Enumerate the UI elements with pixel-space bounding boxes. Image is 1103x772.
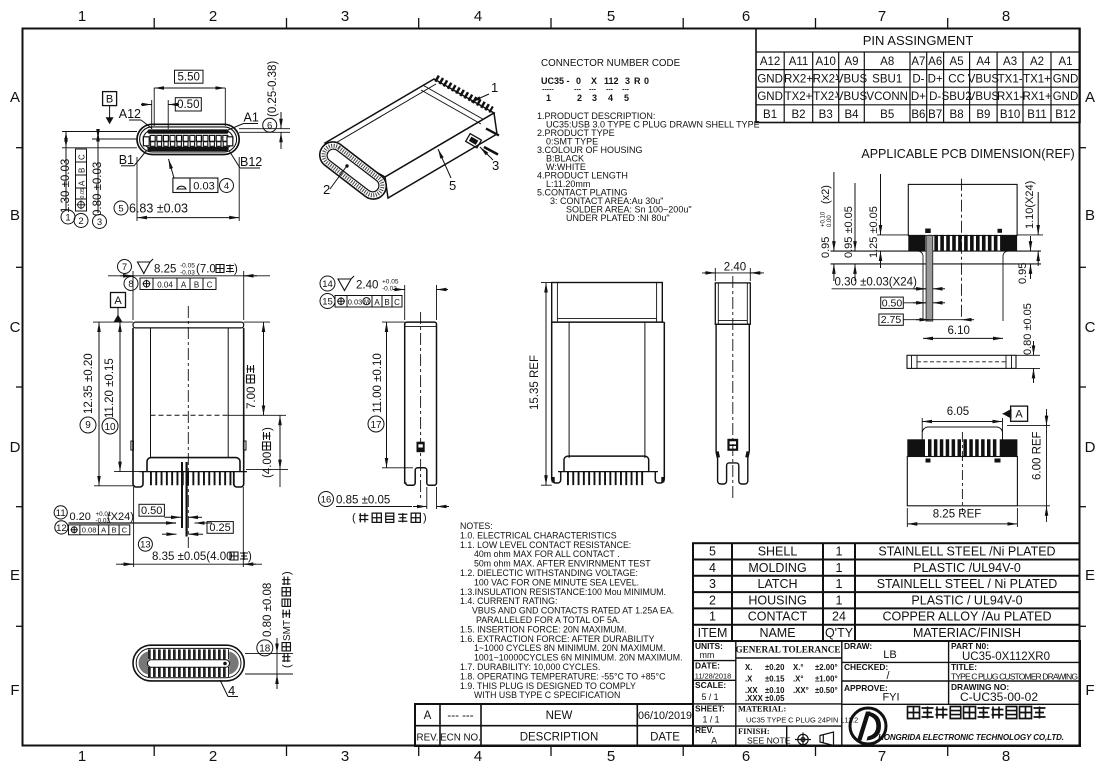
svg-text:STAINLELL STEEL /Ni PLATED: STAINLELL STEEL /Ni PLATED [878,545,1055,559]
svg-text:A: A [10,89,20,106]
svg-text:B1: B1 [763,109,777,121]
svg-text:A: A [78,180,87,186]
svg-text:8: 8 [1002,8,1010,25]
svg-text:.X: .X [745,675,753,684]
svg-text:2: 2 [209,748,217,765]
svg-text:1.25 ±0.05: 1.25 ±0.05 [868,206,880,258]
svg-text:D: D [10,439,21,456]
svg-text:0.80 ±0.05: 0.80 ±0.05 [1022,303,1034,355]
svg-text:A8: A8 [880,56,894,68]
svg-text:6.05: 6.05 [947,406,969,418]
svg-text:A: A [114,295,122,307]
svg-text:A7: A7 [911,56,925,68]
svg-text:B: B [384,298,389,307]
svg-text:TX2-: TX2- [813,91,838,103]
svg-text:3: 3 [492,158,499,173]
svg-text:X.: X. [745,663,752,672]
svg-text:B: B [106,93,113,105]
svg-text:(X24): (X24) [107,511,134,523]
svg-text:B2: B2 [791,109,805,121]
svg-text:UNDER PLATED :NI 80u": UNDER PLATED :NI 80u" [566,213,670,223]
svg-text:F: F [10,682,19,699]
svg-text:2.40: 2.40 [724,262,746,274]
svg-text:M: M [364,300,369,306]
svg-text:(4.00: (4.00 [262,452,274,478]
svg-text:UC35 TYPE C PLUG 24PIN L11.2: UC35 TYPE C PLUG 24PIN L11.2 [746,716,858,725]
svg-text:PLASTIC /UL94V-0: PLASTIC /UL94V-0 [913,561,1021,575]
svg-text:12: 12 [56,523,67,534]
svg-text:A: A [424,710,432,722]
svg-text:TX2+: TX2+ [785,91,813,103]
svg-text:2: 2 [209,8,217,25]
svg-text:1: 1 [836,561,843,575]
svg-text:5: 5 [624,93,629,103]
svg-text:1: 1 [78,748,86,765]
svg-text:A12: A12 [119,107,141,121]
svg-text:MATERIAC/FINISH: MATERIAC/FINISH [913,626,1021,640]
svg-text:5: 5 [709,545,716,559]
svg-text:2.75: 2.75 [881,314,902,326]
svg-text:C: C [122,526,128,535]
svg-text:A11: A11 [789,56,809,68]
svg-text:10: 10 [104,422,116,433]
svg-text:1: 1 [836,593,843,607]
svg-text:5.50: 5.50 [178,72,200,84]
svg-text:(0.25-0.38): (0.25-0.38) [267,61,279,117]
svg-text:B5: B5 [880,109,894,121]
svg-text:A6: A6 [928,56,942,68]
svg-text:B: B [111,526,116,535]
svg-text:3: 3 [625,76,630,86]
svg-text:0.08: 0.08 [82,526,97,535]
svg-text:SHELL: SHELL [758,545,798,559]
svg-text:MOLDING: MOLDING [748,561,806,575]
svg-text:17: 17 [370,420,382,431]
svg-text:REV.: REV. [417,733,439,744]
svg-text:C: C [10,319,21,336]
svg-text:0.20: 0.20 [70,511,91,523]
svg-text:A5: A5 [950,56,964,68]
svg-text:±2.00°: ±2.00° [815,663,838,672]
svg-text:2: 2 [709,593,716,607]
svg-text:4: 4 [608,93,613,103]
svg-text:CHECKED:: CHECKED: [844,662,888,672]
svg-text:0.03: 0.03 [193,181,214,193]
svg-text:A3: A3 [1003,56,1017,68]
svg-text:SMT: SMT [282,620,293,641]
svg-text:1.10(X24): 1.10(X24) [1024,181,1036,229]
svg-text:RX2+: RX2+ [784,74,813,86]
svg-text:VCONN: VCONN [866,91,908,103]
svg-text:REV.: REV. [695,725,714,735]
svg-text:UC35-0X112XR0: UC35-0X112XR0 [962,651,1050,663]
svg-text:DATE:: DATE: [695,661,720,671]
svg-text:4: 4 [228,683,235,698]
svg-text:3: 3 [341,8,349,25]
svg-text:STAINLELL STEEL / Ni PLATED: STAINLELL STEEL / Ni PLATED [877,577,1058,591]
svg-text:GND: GND [757,74,783,86]
svg-text:06/10/2019: 06/10/2019 [638,710,692,722]
svg-text:15.35 REF: 15.35 REF [529,355,541,410]
svg-text:5: 5 [607,8,615,25]
svg-text:7: 7 [878,748,886,765]
svg-text:0.03: 0.03 [348,298,363,307]
svg-text:9: 9 [85,420,91,431]
svg-text:5 / 1: 5 / 1 [701,692,718,702]
svg-text:2.40: 2.40 [356,280,378,292]
svg-text:8.25: 8.25 [154,264,176,276]
svg-text:.X°: .X° [793,675,804,684]
svg-text:B: B [1085,207,1095,224]
svg-text:GND: GND [1053,74,1079,86]
svg-text:6.00 REF: 6.00 REF [1032,431,1044,480]
svg-text:Q'TY: Q'TY [825,626,854,640]
svg-text:DATE: DATE [650,732,680,744]
svg-text:5: 5 [449,178,456,193]
svg-text:VBUS: VBUS [968,74,1000,86]
svg-text:VBUS: VBUS [968,91,1000,103]
svg-text:A: A [711,736,717,746]
svg-text:0: 0 [576,76,581,86]
svg-text:.XXX: .XXX [745,694,764,703]
svg-text:): ) [234,264,238,276]
svg-text:24: 24 [832,610,846,624]
svg-text:11.00 ±0.10: 11.00 ±0.10 [372,353,384,413]
svg-text:8.25 REF: 8.25 REF [933,509,982,521]
svg-text:0.95: 0.95 [820,237,832,258]
svg-text:X: X [591,76,597,86]
svg-text:0.95 ±0.05: 0.95 ±0.05 [843,206,855,258]
svg-text:ITEM: ITEM [698,626,728,640]
svg-text:A: A [1085,89,1095,106]
svg-text:112: 112 [604,76,619,86]
svg-text:NAME: NAME [759,626,795,640]
svg-text:A1: A1 [1058,56,1072,68]
svg-text:mm: mm [700,650,715,660]
svg-text:D-: D- [929,91,941,103]
svg-text:WITH USB TYPE C SPECIFICATION: WITH USB TYPE C SPECIFICATION [474,690,620,700]
svg-text:1: 1 [491,80,498,95]
svg-text:ECN NO.: ECN NO. [440,733,481,744]
svg-text:0.80 ±0.03: 0.80 ±0.03 [92,162,104,216]
svg-text:UC35 -: UC35 - [541,76,570,86]
svg-text:GND: GND [1053,91,1079,103]
svg-text:C: C [78,154,87,160]
svg-text:±0.05: ±0.05 [765,694,785,703]
svg-text:1.30 ±0.03: 1.30 ±0.03 [60,159,72,213]
svg-text:HONGRIDA ELECTRONIC TECHNOLOGY: HONGRIDA ELECTRONIC TECHNOLOGY CO,LTD. [878,733,1064,742]
svg-text:11/28/2018: 11/28/2018 [695,672,731,681]
svg-text:C: C [207,280,213,289]
svg-text:8: 8 [128,279,133,290]
svg-text:C: C [394,298,400,307]
svg-text:): ) [262,427,274,431]
svg-text:B10: B10 [1000,109,1020,121]
svg-text:4: 4 [224,181,229,192]
svg-text:6.83 ±0.03: 6.83 ±0.03 [129,202,188,216]
svg-text:B3: B3 [819,109,833,121]
svg-text:): ) [423,512,427,524]
svg-text:DESCRIPTION: DESCRIPTION [520,732,599,744]
svg-text:0.05: 0.05 [80,188,86,199]
svg-text:1: 1 [78,8,86,25]
svg-text:RX1+: RX1+ [1022,91,1051,103]
svg-text:D+: D+ [928,74,943,86]
svg-text:B: B [194,280,199,289]
svg-text:B4: B4 [844,109,859,121]
svg-text:0.85 ±0.05: 0.85 ±0.05 [336,495,390,507]
svg-text:0.00: 0.00 [827,215,833,227]
svg-text:TX1+: TX1+ [1023,74,1051,86]
svg-text:0.50: 0.50 [141,505,162,517]
svg-text:5: 5 [607,748,615,765]
svg-text:NEW: NEW [546,710,573,722]
svg-text:11: 11 [56,508,66,519]
svg-text:0.80 ±0.08: 0.80 ±0.08 [262,583,274,637]
svg-text:A12: A12 [760,56,780,68]
svg-text:PART N0:: PART N0: [951,641,989,651]
svg-text:6: 6 [267,121,272,132]
svg-text:--- ---: --- --- [447,710,473,722]
svg-text:(x2): (x2) [820,185,832,204]
svg-text:+0.10: +0.10 [821,211,827,227]
svg-text:TITLE:: TITLE: [951,662,977,672]
svg-text:(: ( [281,664,293,668]
svg-text:A: A [181,280,187,289]
svg-text:2: 2 [323,182,330,197]
svg-text:GND: GND [757,91,783,103]
svg-text:+0.05: +0.05 [382,279,399,286]
svg-text:1: 1 [709,610,716,624]
svg-text:B9: B9 [976,109,990,121]
svg-text:D: D [1085,439,1096,456]
svg-text:A: A [101,526,106,535]
svg-text:A: A [374,298,380,307]
svg-text:1: 1 [546,93,551,103]
svg-text:±0.15: ±0.15 [765,675,785,684]
svg-text:B8: B8 [950,109,964,121]
svg-text:3: 3 [709,577,716,591]
svg-text:B12: B12 [240,155,262,169]
svg-text:1: 1 [65,213,70,224]
svg-text:A10: A10 [815,56,835,68]
svg-text:8: 8 [1002,748,1010,765]
svg-text:D+: D+ [911,91,926,103]
svg-text:COPPER ALLOY /Au PLATED: COPPER ALLOY /Au PLATED [882,610,1051,624]
svg-text:0.04: 0.04 [157,280,173,289]
svg-text:F: F [1085,682,1094,699]
svg-text:6.10: 6.10 [948,325,970,337]
svg-text:4: 4 [474,748,482,765]
svg-text:3: 3 [341,748,349,765]
svg-text:CONTACT: CONTACT [748,610,808,624]
svg-text:0.95: 0.95 [1017,263,1029,284]
svg-text:0: 0 [644,76,649,86]
svg-text:18: 18 [259,644,271,655]
svg-text:11.20 ±0.15: 11.20 ±0.15 [104,358,116,418]
svg-text:B11: B11 [1027,109,1047,121]
svg-text:2: 2 [78,216,83,227]
svg-text:SEE NOTE: SEE NOTE [747,736,791,746]
svg-text:0.25: 0.25 [209,522,230,534]
svg-text:16: 16 [321,495,332,506]
svg-text:RX1-: RX1- [997,91,1023,103]
svg-text:B7: B7 [928,109,942,121]
svg-text:E: E [10,567,20,584]
svg-text:VBUS: VBUS [836,74,868,86]
svg-text:PLASTIC / UL94V-0: PLASTIC / UL94V-0 [911,593,1022,607]
svg-text:MATERIAL:: MATERIAL: [738,705,786,714]
svg-text:A: A [1015,409,1023,421]
svg-text:B: B [78,168,87,173]
svg-text:±0.50°: ±0.50° [815,686,838,695]
svg-text:APPROVE:: APPROVE: [844,683,888,693]
svg-text:5: 5 [118,204,123,215]
svg-text:12.35 ±0.20: 12.35 ±0.20 [83,353,95,414]
svg-text:): ) [248,551,252,563]
svg-text:B12: B12 [1055,109,1075,121]
svg-text:7: 7 [122,262,127,273]
svg-text:B: B [10,207,20,224]
svg-text:4: 4 [709,561,716,575]
svg-text:±0.20: ±0.20 [765,663,785,672]
svg-text:C-UC35-00-02: C-UC35-00-02 [960,690,1038,704]
svg-text:D-: D- [912,74,924,86]
svg-text:CC: CC [948,74,965,86]
svg-text:8.35 ±0.05(4.00: 8.35 ±0.05(4.00 [152,551,232,563]
svg-text:.XX°: .XX° [793,686,809,695]
svg-text:6: 6 [742,8,750,25]
svg-text:FYI: FYI [882,692,899,704]
svg-text:APPLICABLE PCB DIMENSION(REF): APPLICABLE PCB DIMENSION(REF) [861,147,1074,161]
svg-text:A4: A4 [976,56,991,68]
svg-text:(: ( [352,512,356,524]
svg-text:15: 15 [322,297,333,308]
svg-text:): ) [281,571,293,575]
svg-text:14: 14 [322,279,333,290]
svg-text:1: 1 [836,545,843,559]
svg-text:2: 2 [577,93,582,103]
svg-text:A1: A1 [244,111,259,125]
svg-text:4: 4 [474,8,482,25]
svg-text:7.00: 7.00 [246,387,258,409]
svg-text:7: 7 [878,8,886,25]
svg-text:X.°: X.° [793,663,804,672]
svg-text:E: E [1085,567,1095,584]
svg-text:TX1-: TX1- [998,74,1023,86]
svg-text:6: 6 [742,748,750,765]
svg-text:VBUS: VBUS [836,91,868,103]
svg-text:1 / 1: 1 / 1 [702,715,719,725]
svg-text:-0.05: -0.05 [180,263,195,270]
svg-text:B6: B6 [911,109,925,121]
svg-text:R: R [634,76,641,86]
svg-text:A9: A9 [844,56,858,68]
svg-text:LB: LB [883,649,896,661]
svg-text:13: 13 [140,540,151,551]
svg-text:1: 1 [836,577,843,591]
svg-text:0.30 ±0.03(X24): 0.30 ±0.03(X24) [835,277,918,289]
svg-text:PIN ASSINGMENT: PIN ASSINGMENT [863,33,974,48]
svg-text:SCALE:: SCALE: [695,680,726,690]
svg-text:LATCH: LATCH [757,577,797,591]
svg-text:GENERAL TOLERANCE: GENERAL TOLERANCE [735,645,840,655]
svg-text:C: C [1085,319,1096,336]
svg-text:CONNECTOR NUMBER CODE: CONNECTOR NUMBER CODE [541,58,681,69]
svg-text:SBU1: SBU1 [872,74,902,86]
svg-text:TYPE C PLUG CUSTOMER DRAWING: TYPE C PLUG CUSTOMER DRAWING [951,672,1078,682]
svg-text:±1.00°: ±1.00° [815,675,838,684]
svg-text:DRAW:: DRAW: [844,641,872,651]
svg-text:HOUSING: HOUSING [748,593,806,607]
svg-text:B1: B1 [119,153,134,167]
svg-text:3: 3 [592,93,597,103]
svg-text:0.50: 0.50 [882,297,903,309]
svg-text:SHEET:: SHEET: [695,704,725,714]
svg-text:(7.0: (7.0 [196,264,216,276]
svg-text:A2: A2 [1030,56,1044,68]
svg-text:3: 3 [97,217,102,228]
svg-text:0.50: 0.50 [177,99,199,111]
